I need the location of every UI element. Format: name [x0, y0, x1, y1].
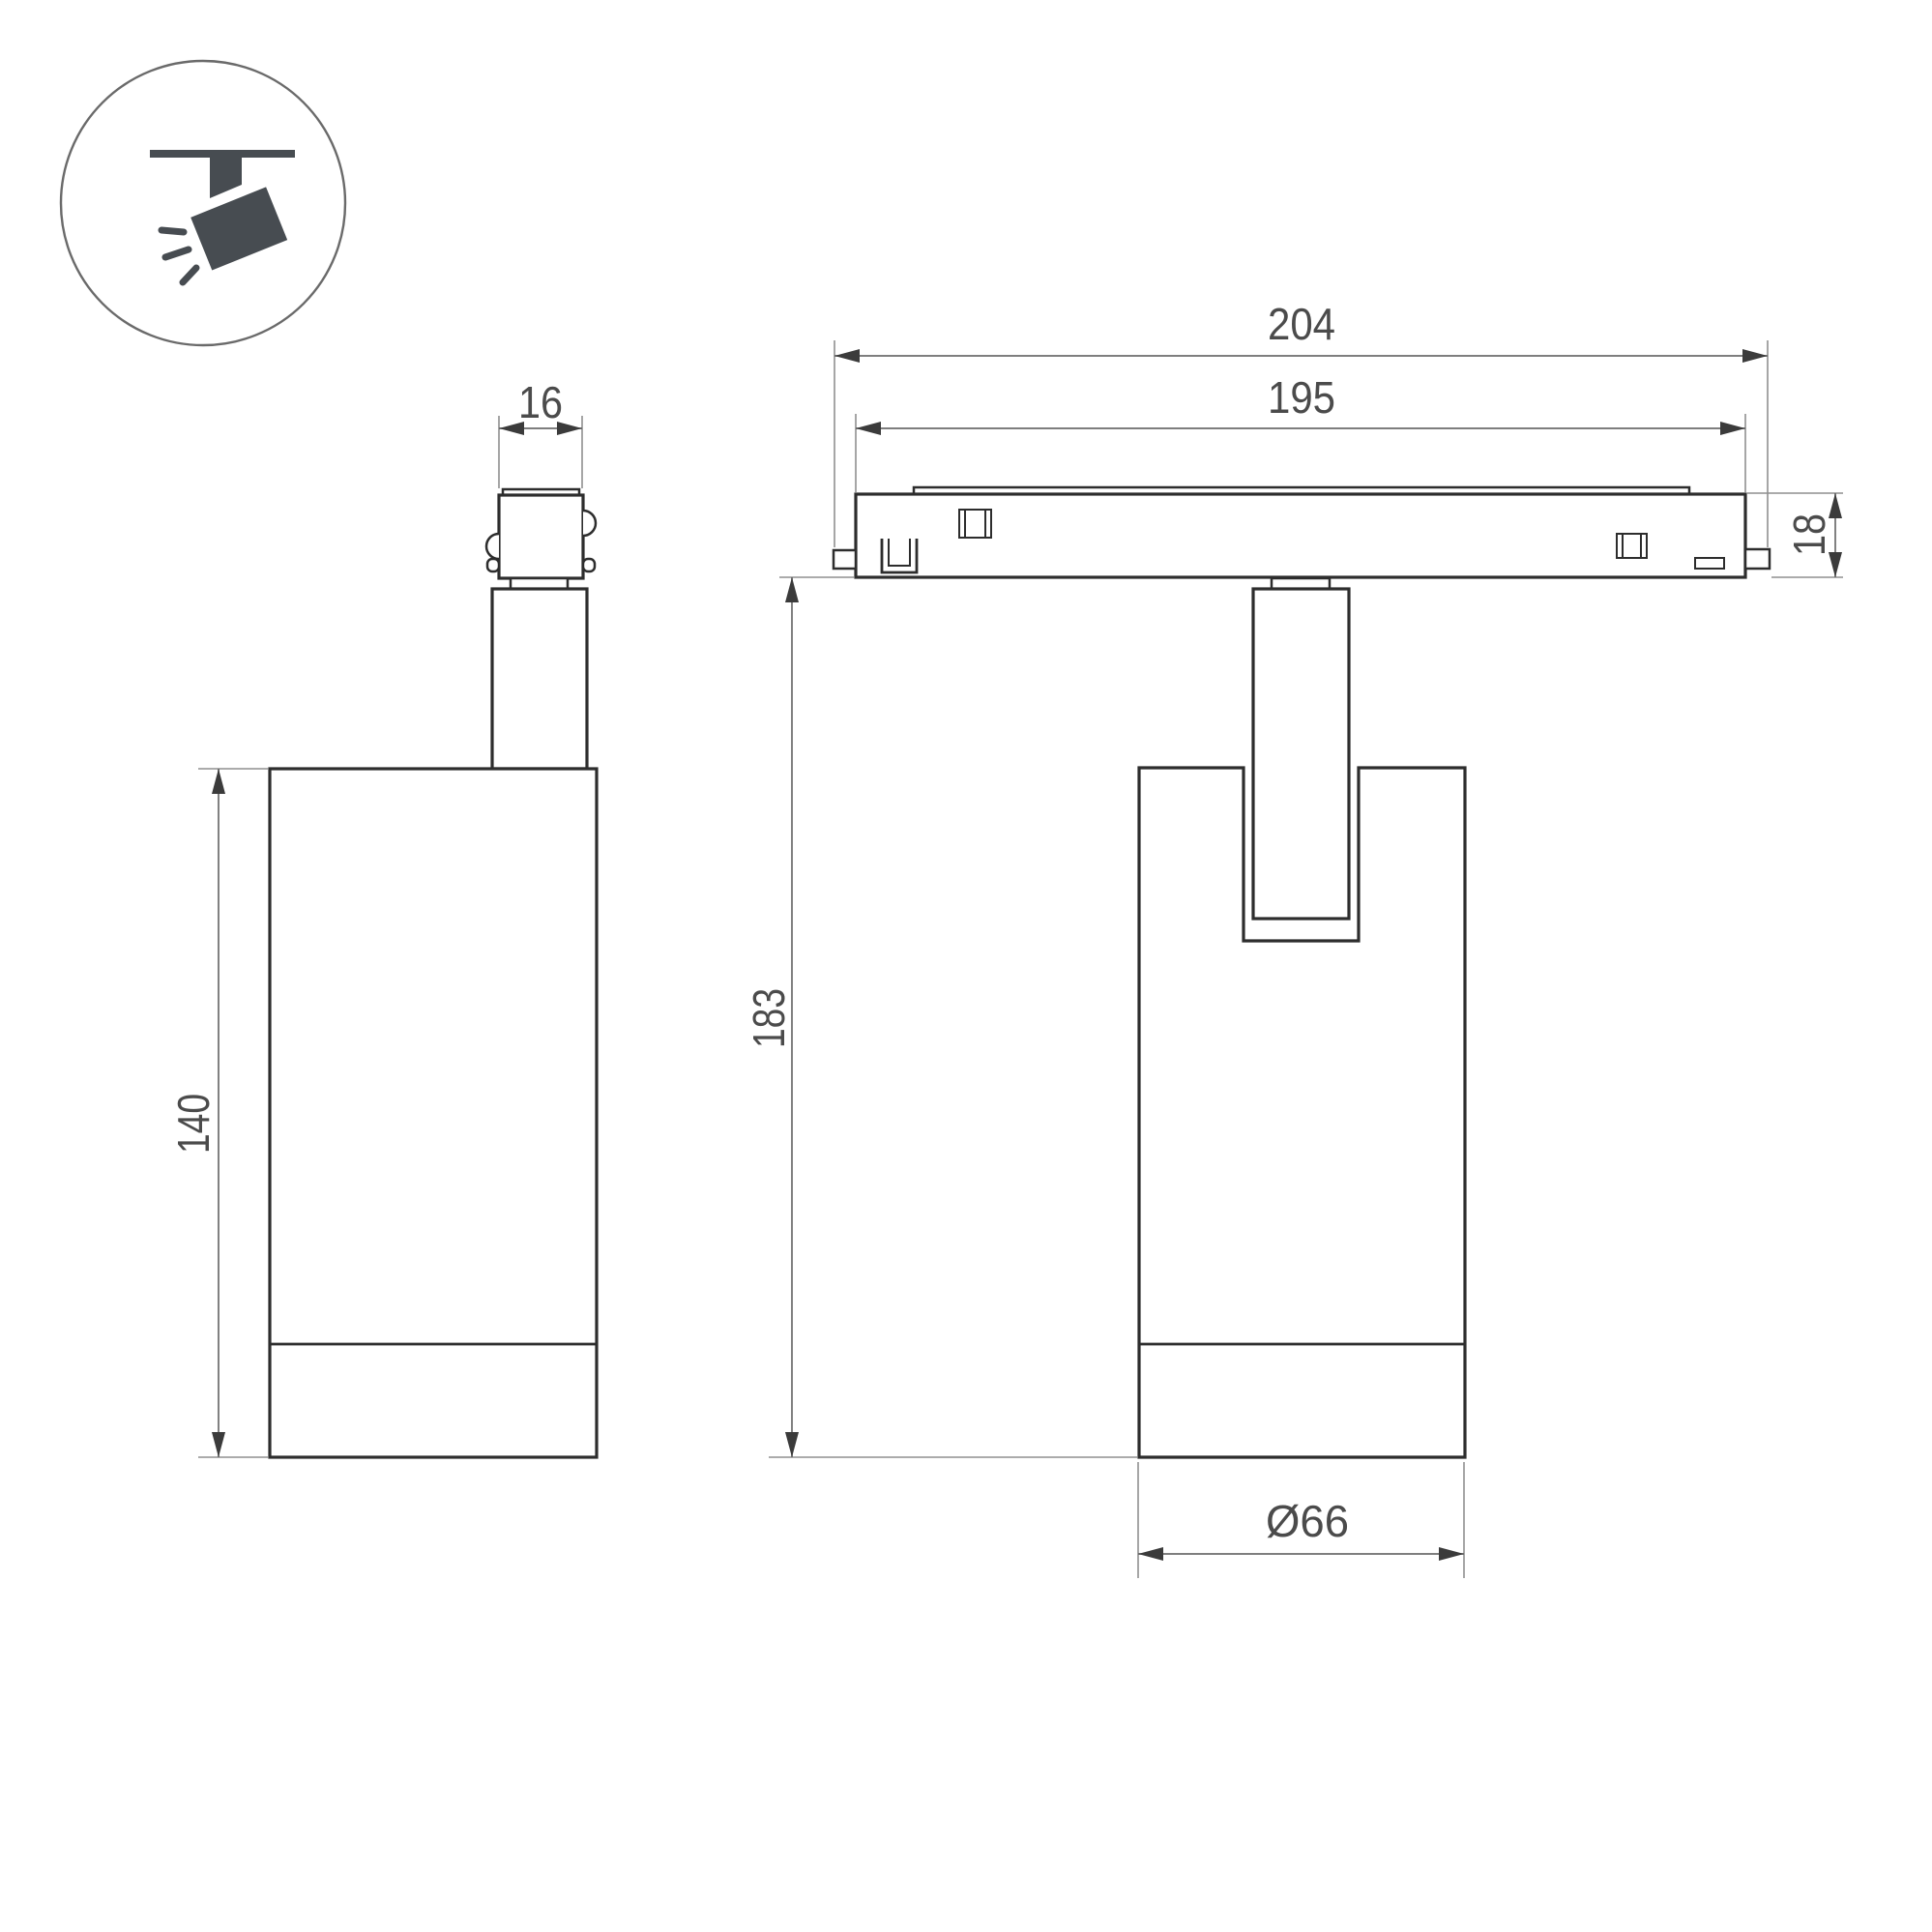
arrowhead-right	[1742, 349, 1768, 363]
drawing-canvas: 16 140	[0, 0, 1932, 1932]
arrowhead-up	[785, 577, 799, 602]
arrowhead-right	[1439, 1547, 1464, 1561]
product-type-icon	[61, 61, 345, 345]
side-view	[270, 489, 597, 1457]
icon-circle	[61, 61, 345, 345]
arrowhead-down	[785, 1432, 799, 1457]
front-view	[834, 487, 1770, 1457]
front-track-end-tab-left	[834, 550, 856, 569]
dim-total-height-183: 183	[744, 577, 1137, 1457]
dim-label-195: 195	[1268, 372, 1335, 423]
dim-label-18: 18	[1784, 513, 1834, 556]
side-stem	[492, 589, 587, 769]
side-adapter-lug-left	[487, 559, 499, 571]
front-track-end-tab-right	[1745, 549, 1770, 569]
arrowhead-up	[212, 769, 225, 794]
icon-spot-head	[190, 187, 287, 270]
dim-body-diameter-66: Ø66	[1138, 1462, 1464, 1578]
icon-ray-middle	[165, 249, 189, 257]
side-adapter-ear-left-arc	[486, 534, 499, 559]
icon-mount-stem	[210, 155, 242, 198]
icon-ray-bottom	[183, 268, 196, 282]
dim-label-204: 204	[1268, 299, 1335, 349]
side-neck	[511, 578, 568, 589]
dim-label-183: 183	[744, 988, 794, 1048]
side-adapter-lug-right	[583, 559, 595, 571]
dim-label-16: 16	[518, 377, 563, 427]
front-track-body	[856, 494, 1745, 577]
dimension-drawing: 16 140	[0, 0, 1932, 1932]
arrowhead-left	[1138, 1547, 1163, 1561]
arrowhead-right	[1720, 422, 1745, 435]
dim-label-diameter-66: Ø66	[1266, 1496, 1349, 1546]
arrowhead-left	[834, 349, 860, 363]
icon-ray-top	[161, 230, 184, 232]
arrowhead-down	[212, 1432, 225, 1457]
side-body	[270, 769, 597, 1457]
icon-light-rays	[161, 230, 196, 282]
side-adapter-ear-right-arc	[583, 511, 596, 536]
dim-label-140: 140	[168, 1094, 219, 1154]
side-track-adapter	[499, 495, 583, 578]
front-neck	[1272, 578, 1330, 589]
dim-body-height-140: 140	[168, 769, 268, 1457]
dim-adapter-width-16: 16	[499, 377, 582, 488]
arrowhead-left	[856, 422, 881, 435]
front-stem	[1253, 589, 1349, 919]
dim-track-inner-195: 195	[856, 372, 1745, 492]
